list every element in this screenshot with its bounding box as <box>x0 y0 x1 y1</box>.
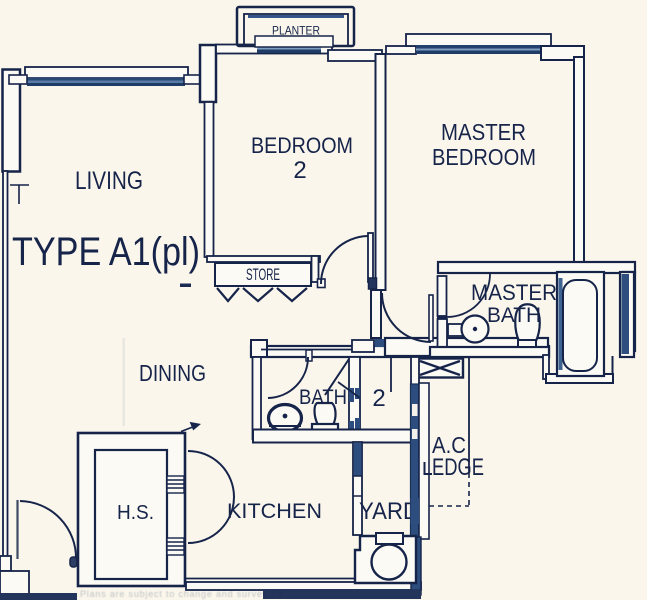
svg-text:2: 2 <box>293 157 306 184</box>
svg-text:Plans are subject to change an: Plans are subject to change and survey 1… <box>80 589 284 599</box>
svg-text:DINING: DINING <box>139 360 206 386</box>
svg-text:BATH: BATH <box>299 386 347 409</box>
svg-text:BATH: BATH <box>487 304 541 327</box>
svg-text:PLANTER: PLANTER <box>272 26 320 38</box>
svg-text:KITCHEN: KITCHEN <box>227 499 322 523</box>
svg-text:H.S.: H.S. <box>117 501 154 524</box>
svg-text:EDGE: EDGE <box>432 454 484 481</box>
svg-text:BEDROOM: BEDROOM <box>251 133 353 158</box>
svg-text:LIVING: LIVING <box>75 167 143 195</box>
svg-text:TYPE A1(pl): TYPE A1(pl) <box>12 230 200 274</box>
svg-text:STORE: STORE <box>246 266 280 284</box>
svg-text:MASTER: MASTER <box>471 280 557 305</box>
svg-text:MASTER: MASTER <box>441 119 526 145</box>
svg-text:BEDROOM: BEDROOM <box>432 144 536 170</box>
svg-text:YARD: YARD <box>359 498 419 525</box>
svg-text:2: 2 <box>372 385 385 412</box>
